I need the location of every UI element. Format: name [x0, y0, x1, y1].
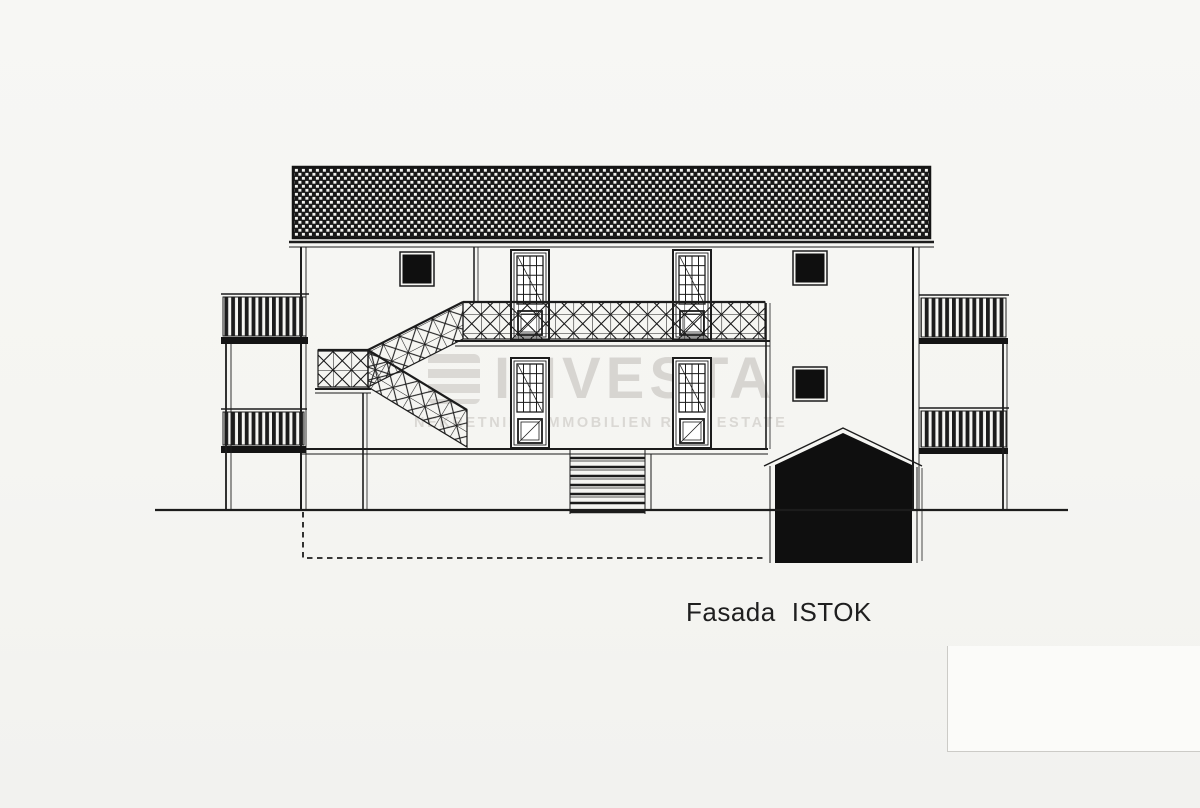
corner-patch — [947, 646, 1200, 752]
glazed-door-lower-1 — [511, 358, 549, 448]
window-black-upper-right — [793, 251, 827, 285]
porch-floor — [300, 449, 768, 510]
left-balconies — [221, 294, 309, 510]
below-grade-dashed-line — [303, 512, 765, 558]
window-black-lower-right — [793, 367, 827, 401]
caption-word-istok: ISTOK — [792, 597, 872, 628]
window-black-upper-left — [400, 252, 434, 286]
entrance-steps — [570, 449, 645, 514]
drawing-caption: Fasada ISTOK — [686, 597, 872, 628]
ground-floor-openings — [511, 358, 827, 448]
right-balconies — [919, 295, 1009, 510]
caption-word-fasada: Fasada — [686, 597, 776, 628]
scanned-drawing-page: INVESTA NEKRETNINE IMMOBILIEN REAL ESTAT… — [0, 0, 1200, 808]
glazed-door-lower-2 — [673, 358, 711, 448]
garage-annex — [764, 428, 922, 563]
roof — [289, 167, 934, 247]
